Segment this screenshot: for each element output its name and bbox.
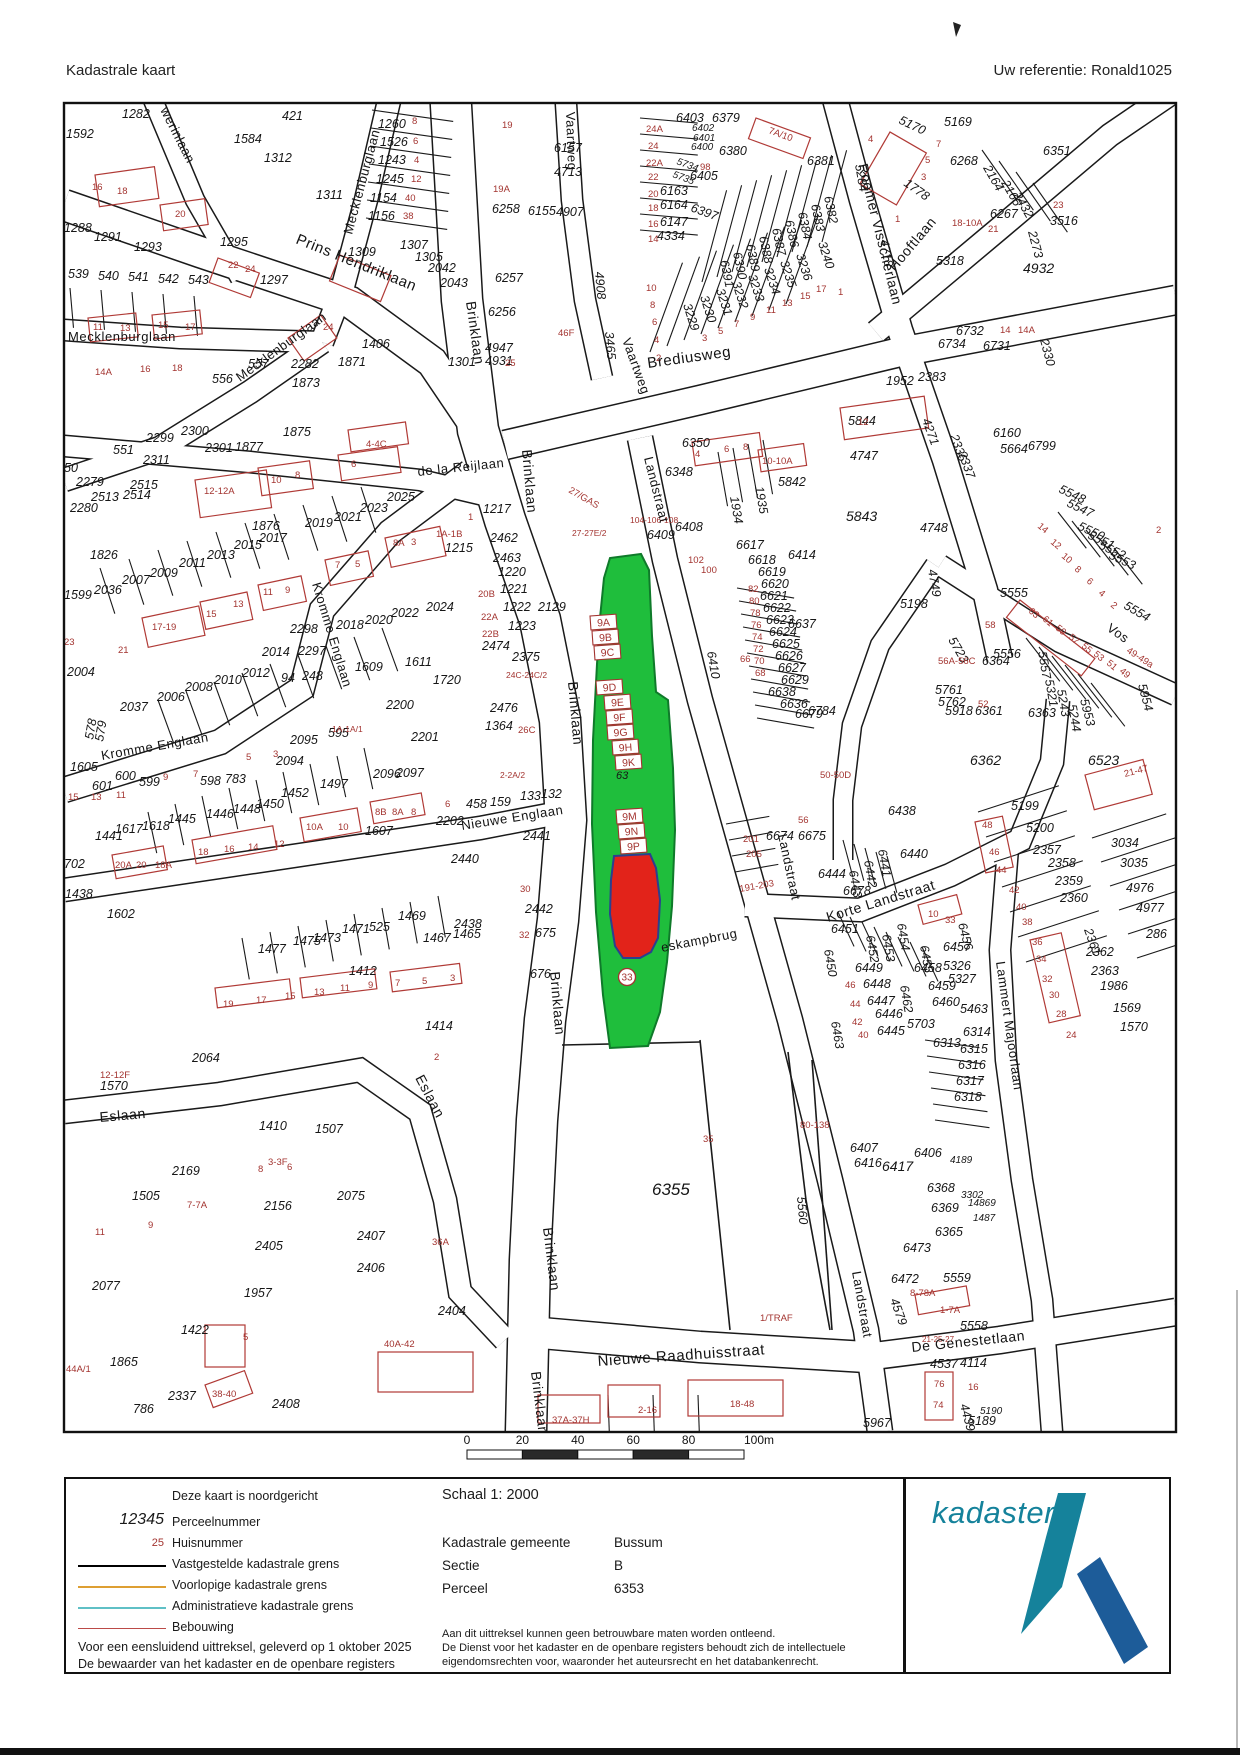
parcel-number: 4748 [920,521,948,535]
legend-panel: Deze kaart is noordgericht 12345 Perceel… [64,1477,905,1674]
parcel-number: 6379 [712,111,740,125]
parcel-number: 2094 [275,754,304,768]
parcel-number: 159 [490,795,511,809]
parcel-number: 2156 [263,1199,292,1213]
parcel-number: 6268 [950,154,978,168]
parcel-number: 6381 [807,154,835,168]
street-name: eskampbrug [660,925,739,955]
parcel-number: 6523 [1088,752,1119,768]
house-number: 80-138 [800,1120,830,1131]
parcel-number: 6447 [867,994,896,1008]
house-number-sample: 25 [76,1537,164,1549]
cadastral-map: 9A9B9C9D9E9F9G9H9K9M9N9P3315921282421158… [0,0,1240,1477]
parcel-number: 2360 [1059,891,1088,905]
house-number: 8 [1072,564,1083,576]
parcel-number: 6458 [914,961,942,975]
parcel-number: 2383 [917,370,946,384]
housenumber-box-label: 9E [611,697,625,710]
housenumber-circle-label: 33 [621,973,633,984]
house-number: 10 [271,475,282,486]
parcel-number: 6416 [854,1156,882,1170]
parcel-number: 2279 [75,475,104,489]
parcel-number: 1935 [752,485,771,515]
house-number: 12 [274,839,285,850]
house-number: 3 [273,749,278,760]
parcel-number: 4932 [1023,260,1054,276]
house-number: 23 [64,637,75,648]
parcel-number: 2299 [145,431,174,445]
house-number: 11 [263,587,273,598]
house-number: 44 [850,999,861,1010]
house-number: 8 [743,442,748,453]
parcel-number: 2023 [359,501,388,515]
parcel-number: 1452 [281,786,309,800]
house-number: 20 [175,209,186,220]
scalebar-label: 100m [744,1433,774,1447]
house-number: 17 [256,995,267,1006]
parcel-number: 1288 [64,221,92,235]
house-number: 19A [493,184,511,195]
house-number: 74 [933,1400,944,1411]
scalebar-label: 0 [464,1433,471,1447]
house-number: 20 [648,189,659,200]
parcel-number: 5967 [863,1416,892,1430]
parcel-number: 2375 [511,650,540,664]
parcel-number: 1445 [168,812,196,826]
house-number: 8 [258,1164,263,1175]
parcel-number: 579 [92,720,109,743]
house-number: 12-12A [204,486,235,497]
parcel-number: 2463 [492,551,521,565]
sectie-value: B [614,1558,623,1573]
parcel-number: 5318 [936,254,964,268]
house-number: 42 [1009,885,1020,896]
parcel-number: 6314 [963,1025,991,1039]
housenumber-box-label: 9P [627,841,641,854]
house-number: 56A-56C [938,656,976,667]
parcel-number: 5554 [1122,598,1153,624]
parcel-number: 6450 [821,948,840,978]
parcel-number: 6675 [798,829,826,843]
parcel-number: 5170 [897,113,928,137]
ink-mark [953,22,961,37]
parcel-number: 1291 [94,230,122,244]
parcel-number: 6351 [1043,144,1071,158]
house-number: 26C [518,725,536,736]
parcel-number: 2404 [437,1304,466,1318]
parcel-number: 5703 [907,1017,935,1031]
house-number: 19 [223,999,234,1010]
parcel-number: 600 [115,769,136,783]
parcel-number: 4976 [1126,881,1154,895]
house-number: 18 [172,363,183,374]
parcel-number: 4947 [485,341,514,355]
parcel-number: 6473 [903,1241,931,1255]
parcel-number: 1220 [498,565,526,579]
parcel-number: 1570 [100,1079,128,1093]
parcel-number: 1406 [362,337,390,351]
parcel-number: 6457 [943,940,972,954]
scalebar-label: 60 [627,1433,641,1447]
parcel-number: 2311 [142,453,170,467]
parcel-division [1092,814,1166,838]
legend-huisnummer: Huisnummer [172,1536,243,1550]
scan-artifact-bar [0,1748,1240,1755]
parcel-number: 2476 [489,701,518,715]
parcel-number: 702 [64,857,85,871]
street-name: Vaartweg [563,112,580,171]
house-number: 11 [766,305,776,316]
parcel-number: 2037 [119,700,149,714]
parcel-number: 5169 [944,115,972,129]
housenumber-box-label: 9M [622,811,637,824]
parcel-number: 2301 [204,441,233,455]
house-number: 2 [434,1052,439,1063]
parcel-number: 5918 [945,704,973,718]
housenumber-box: 9K [615,754,642,770]
parcel-number: 5557 [1035,650,1054,681]
house-number: 1 [895,214,900,225]
parcel-number: 2012 [241,666,270,680]
parcel-number: 2438 [453,917,482,931]
parcel-number: 6454 [894,922,913,952]
parcel-number: 63 [616,770,629,782]
housenumber-box-label: 9D [602,682,617,695]
parcel-number: 6406 [914,1146,942,1160]
house-number: 205 [746,849,762,860]
scalebar-segment [522,1450,577,1459]
parcel-number: 1467 [423,931,452,945]
house-number: 8 [412,116,417,127]
house-number: 76 [934,1379,945,1390]
house-number: 1A-1A/1 [332,724,363,734]
house-number: 8-78A [910,1288,936,1299]
parcel-number: 6317 [956,1074,985,1088]
house-number: 12-12F [100,1070,130,1081]
parcel-number: 2042 [427,261,456,275]
parcel-number: 6362 [970,752,1001,768]
parcel-number: 1156 [368,209,395,223]
parcel-number: 1871 [338,355,366,369]
house-number: 56 [798,815,809,826]
parcel-number: 3516 [1050,214,1078,228]
scalebar-label: 80 [682,1433,696,1447]
house-number: 14 [648,234,659,245]
parcel-number: 5198 [900,597,928,611]
parcel-number: 2036 [93,583,122,597]
house-number: 14A [1018,325,1036,336]
parcel-number: 2020 [364,613,393,627]
house-number: 48 [982,820,993,831]
parcel-number: 1952 [886,374,914,388]
house-number: 17-19 [152,622,176,633]
house-number: 7 [193,769,198,780]
parcel-number: 6438 [888,804,916,818]
parcel-number: 2300 [180,424,209,438]
scale-label: Schaal 1: 2000 [442,1487,539,1503]
house-number: 58 [985,620,996,631]
house-number: 5 [246,752,251,763]
parcel-number: 6348 [665,465,693,479]
house-number: 8A [392,807,404,818]
house-number: 76 [751,620,762,631]
house-number: 20A [115,860,133,871]
house-number: 16 [968,1382,979,1393]
house-number: 21 [118,645,129,656]
parcel-division [718,452,728,506]
parcel-number: 5842 [778,475,806,489]
house-number: 46 [845,980,856,991]
housenumber-box-label: 9F [613,712,626,725]
parcel-number: 2024 [425,600,454,614]
house-number: 25 [505,358,516,369]
parcel-number: 6364 [982,654,1010,668]
parcel-number: 4334 [657,229,685,243]
house-number: 40 [858,1030,869,1041]
parcel-number: 783 [225,772,246,786]
building-outline [205,1325,245,1367]
parcel-number: 540 [98,269,119,283]
parcel-number: 6409 [647,528,675,542]
parcel-number: 1826 [90,548,118,562]
house-number: 21 [988,224,999,235]
house-number: 14A [95,367,113,378]
parcel-number: 2017 [258,531,288,545]
parcel-number: 132 [541,787,562,801]
house-number: 38 [1022,917,1033,928]
parcel-number: 2200 [385,698,414,712]
house-number: 13 [91,792,102,803]
scalebar-segment [467,1450,522,1459]
scalebar-segment [689,1450,744,1459]
house-number: 33 [945,915,956,926]
parcel-number: 1957 [244,1286,273,1300]
parcel-number: 1222 [503,600,531,614]
parcel-number: 3034 [1111,836,1139,850]
parcel-number: 1584 [234,132,262,146]
parcel-number: 5560 [794,1196,810,1225]
house-number: 7A/10 [767,125,794,144]
house-number: 35 [703,1134,714,1145]
house-number: 1 [468,512,473,523]
parcel-number: 458 [466,797,487,811]
parcel-number: 4908 [592,271,608,300]
house-number: 14 [248,842,259,853]
parcel-number: 1599 [64,588,92,602]
house-number: 6 [351,459,356,470]
parcel-number: 286 [1145,927,1167,941]
parcel-number: 2408 [271,1397,300,1411]
parcel-division [933,1104,987,1112]
parcel-number: 2009 [149,566,178,580]
house-number: 1-7A [940,1305,961,1316]
parcel-number: 539 [68,267,89,281]
parcel-number: 1592 [66,127,94,141]
house-number: 40A-42 [384,1339,415,1350]
housenumber-box-label: 9G [613,727,628,740]
street-name: Vos [1104,620,1132,646]
parcel-number: 2064 [191,1051,220,1065]
house-number: 15 [68,792,79,803]
house-number: 3 [921,172,926,183]
parcel-number: 1469 [398,909,426,923]
parcel-number: 1569 [1113,1001,1141,1015]
parcel-number: 6734 [938,337,966,351]
housenumber-box: 9D [596,679,623,695]
parcel-number: 1720 [433,673,461,687]
parcel-number: 5199 [1011,799,1039,813]
parcel-number: 2006 [156,690,185,704]
house-number: 4 [1096,588,1107,600]
line-sample-bebouwing [78,1628,166,1629]
house-number: 4 [695,449,700,460]
parcel-number: 2019 [304,516,333,530]
house-number: 78 [750,608,761,619]
parcel-number: 1260 [378,117,406,131]
parcel-number: 6316 [958,1058,986,1072]
parcel-number: 1873 [292,376,320,390]
house-number: 24A [646,124,664,135]
parcel-number: 2169 [171,1164,200,1178]
parcel-number: 6799 [1028,439,1056,453]
house-number: 18-48 [730,1399,754,1410]
parcel-number: 2075 [336,1189,365,1203]
parcel-number: 2025 [386,490,415,504]
house-number: 21-47 [1123,763,1149,780]
parcel-division [364,748,373,789]
scan-artifact-line [1236,1290,1238,1755]
housenumber-box: 9C [594,644,621,660]
house-number: 18 [198,847,209,858]
subject-building [610,854,660,958]
parcel-number: 1507 [315,1122,344,1136]
house-number: 4 [414,155,419,166]
parcel-number: 2043 [439,276,468,290]
parcel-number: 5559 [943,1271,971,1285]
gemeente-label: Kadastrale gemeente [442,1535,570,1550]
parcel-number: 6472 [891,1272,919,1286]
house-number: 7 [395,978,400,989]
parcel-number: 6784 [808,704,836,718]
line-sample-voorlopig [78,1586,166,1588]
parcel-number: 1422 [181,1323,209,1337]
parcel-number: 1605 [70,760,98,774]
house-number: 14 [1035,521,1050,536]
house-number: 17 [185,322,196,333]
parcel-number: 1607 [365,824,394,838]
house-number: 36 [1032,937,1043,948]
parcel-number: 2280 [69,501,98,515]
house-number: 68 [755,668,766,679]
kadaster-logo-panel: kadaster [904,1477,1171,1674]
house-number: 5 [243,1332,248,1343]
house-number: 5 [355,559,360,570]
housenumber-box: 9H [612,739,639,755]
house-number: 5 [422,976,427,987]
house-number: 23 [1053,200,1064,211]
house-number: 18 [117,186,128,197]
parcel-number: 6318 [954,1090,982,1104]
parcel-number: 2129 [537,600,566,614]
perceel-value: 6353 [614,1581,644,1596]
house-number: 3-3F [268,1157,288,1168]
house-number: 32 [519,930,530,941]
parcel-number: 4189 [950,1155,973,1166]
parcel-number: 4907 [556,205,585,219]
parcel-number: 2405 [254,1239,283,1253]
parcel-number: 6368 [927,1181,955,1195]
house-number: 34 [1036,954,1047,965]
disclaimer-line2: De Dienst voor het kadaster en de openba… [442,1641,846,1655]
parcel-number: 6258 [492,202,520,216]
parcel-number: 1438 [65,887,93,901]
parcel-division [935,1120,989,1128]
house-number: 22B [482,629,499,640]
house-number: 6 [724,444,729,455]
parcel-number: 2097 [395,766,425,780]
parcel-number-sample: 12345 [76,1511,164,1529]
parcel-number: 6369 [931,1201,959,1215]
house-number: 9 [285,585,290,596]
parcel-division [698,1395,699,1433]
house-number: 8 [295,470,300,481]
parcel-number: 1473 [313,931,341,945]
parcel-number: 2440 [450,852,479,866]
parcel-number: 2407 [356,1229,386,1243]
parcel-number: 1446 [206,807,234,821]
house-number: 10A [306,822,324,833]
perceel-label: Perceel [442,1581,488,1596]
parcel-number: 2330 [1037,336,1058,367]
parcel-number: 6397 [689,201,721,224]
house-number: 19 [502,120,513,131]
parcel-boundary [700,1040,730,1330]
house-number: 11 [340,983,350,994]
parcel-number: 6449 [855,961,883,975]
parcel-number: 2201 [410,730,439,744]
house-number: 8 [411,807,416,818]
parcel-number: 5547 [1065,496,1097,521]
house-number: 100 [701,565,717,576]
parcel-number: 1877 [235,440,264,454]
parcel-number: 3240 [815,240,837,271]
housenumber-box: 9A [590,614,617,630]
house-number: 20 [136,860,147,871]
house-number: 2 [1108,600,1119,612]
parcel-number: 1450 [256,797,284,811]
parcel-number: 6408 [675,520,703,534]
parcel-number: 1778 [901,176,932,203]
parcel-number: 1215 [445,541,473,555]
parcel-number: 2337 [167,1389,197,1403]
house-number: 5 [718,326,723,337]
house-number: 74 [752,632,763,643]
house-number: 46F [558,328,575,339]
parcel-number: 6460 [932,995,960,1009]
house-number: 15 [285,991,296,1002]
parcel-number: 1223 [508,619,536,633]
parcel-number: 2077 [91,1279,121,1293]
parcel-number: 2359 [1054,874,1083,888]
parcel-number: 2297 [297,644,327,658]
parcel-number: 1609 [355,660,383,674]
house-number: 11 [95,1227,105,1238]
house-number: 14 [1000,325,1011,336]
building-outline [688,1380,783,1416]
house-number: 16 [140,364,151,375]
parcel-number: 6315 [960,1042,988,1056]
sectie-label: Sectie [442,1558,480,1573]
